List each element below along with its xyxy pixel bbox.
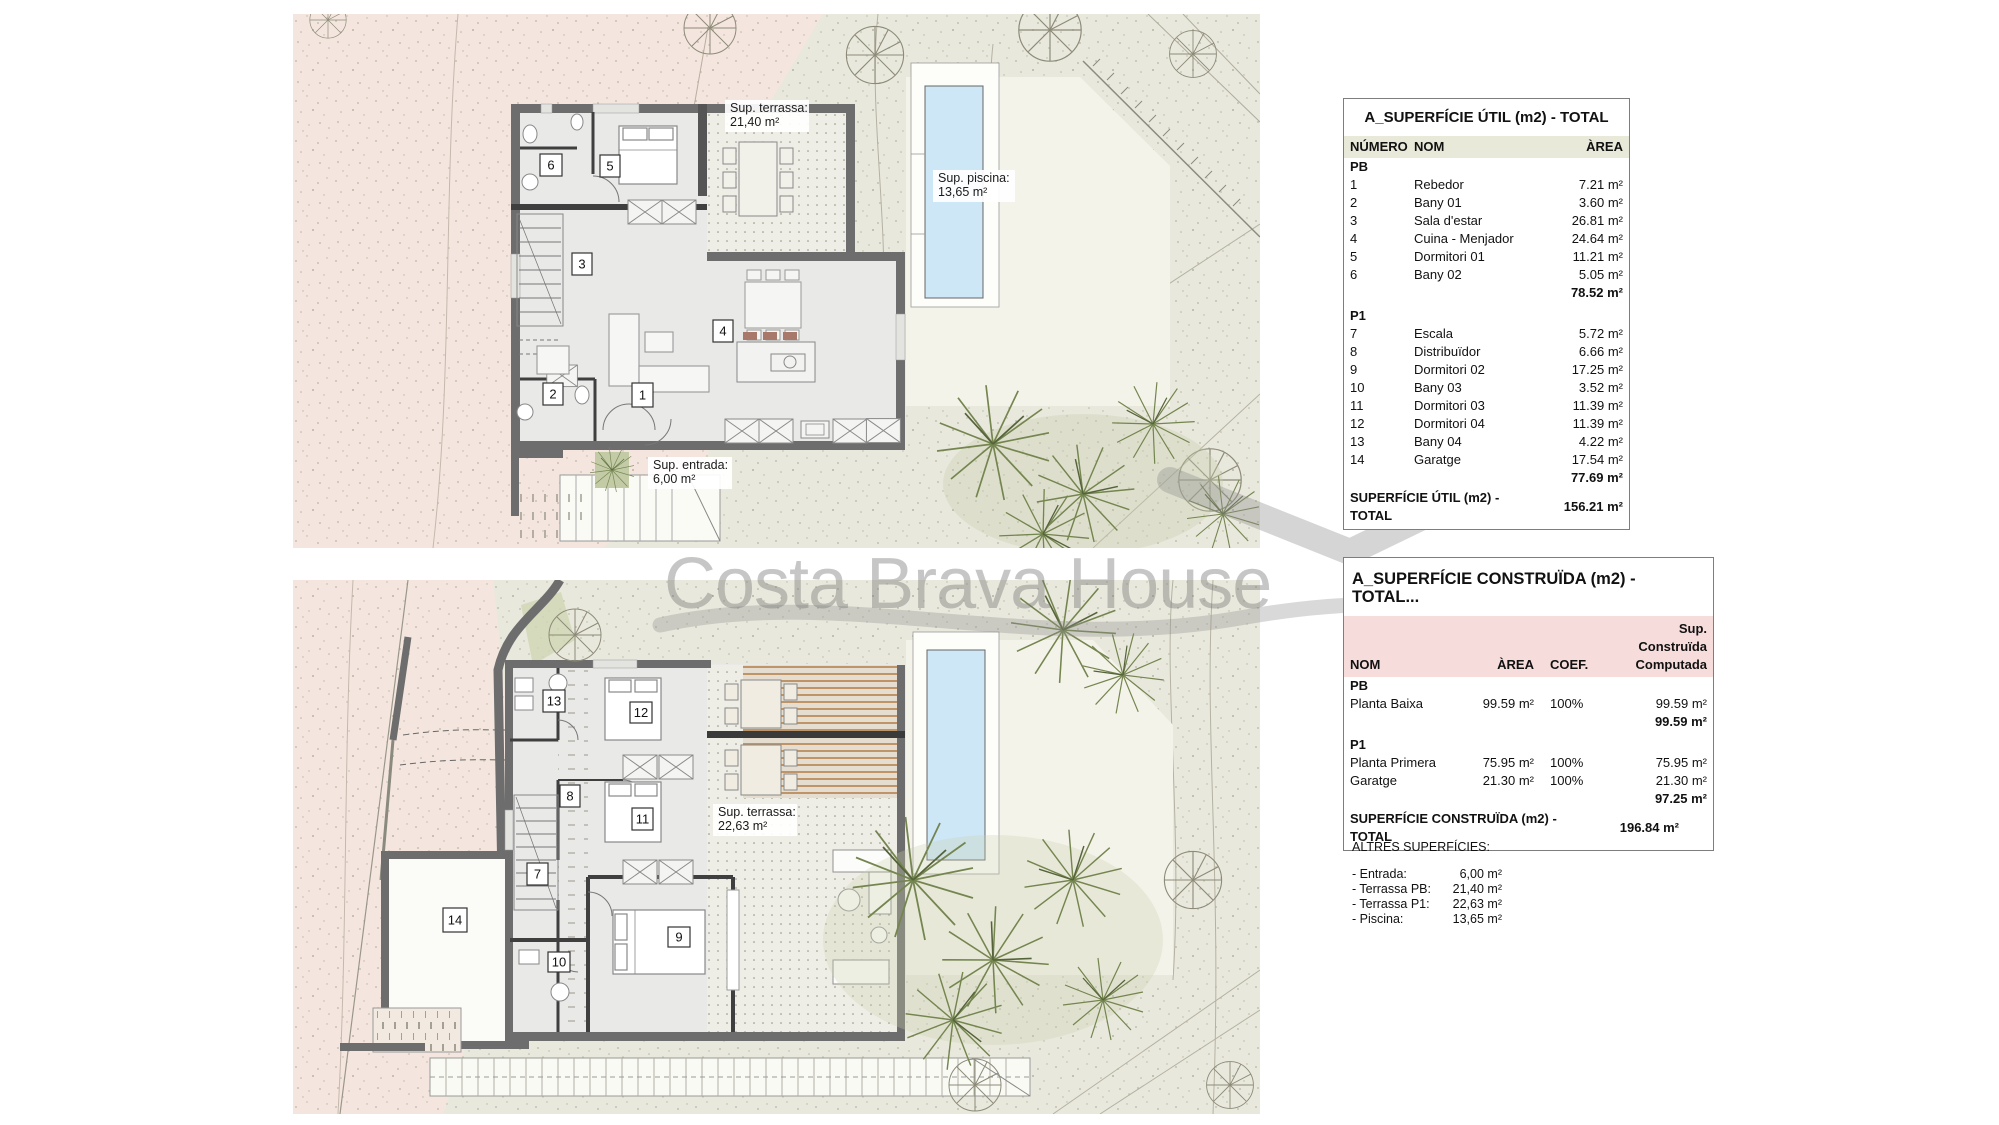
cell-area: 11.21 m² (1539, 248, 1623, 266)
table-superficie-construida: A_SUPERFÍCIE CONSTRUÏDA (m2) - TOTAL... … (1343, 557, 1714, 851)
cell-area: 5.05 m² (1539, 266, 1623, 284)
room-number-label: 13 (543, 690, 565, 712)
svg-text:Sup. entrada:: Sup. entrada: (653, 458, 728, 472)
svg-text:11: 11 (636, 812, 650, 827)
col-header-area: ÀREA (1460, 656, 1534, 674)
table-row: 3 Sala d'estar 26.81 m² (1344, 212, 1629, 230)
svg-text:6: 6 (547, 158, 554, 173)
altres-item-label: - Entrada: (1352, 867, 1440, 882)
cell-sup: 99.59 m² (1620, 695, 1707, 713)
cell-sup: 75.95 m² (1620, 754, 1707, 772)
watermark-text: Costa Brava House (664, 543, 1271, 625)
altres-item-label: - Terrassa P1: (1352, 897, 1440, 912)
cell-numero: 5 (1350, 248, 1414, 266)
cell-nom: Dormitori 03 (1414, 397, 1539, 415)
dining-table (745, 270, 801, 340)
subtotal-row-p1: 97.25 m² (1344, 790, 1713, 808)
col-header-sup-computada: Sup. Construïda Computada (1620, 620, 1707, 674)
room-number-label: 7 (527, 863, 548, 885)
room-number-label: 11 (632, 808, 653, 830)
cell-nom: Bany 01 (1414, 194, 1539, 212)
table-header-row: NOM ÀREA COEF. Sup. Construïda Computada (1344, 616, 1713, 677)
wardrobe (628, 200, 662, 224)
table-title: A_SUPERFÍCIE CONSTRUÏDA (m2) - TOTAL... (1344, 558, 1713, 616)
svg-text:14: 14 (448, 913, 462, 928)
table-row: Planta Baixa 99.59 m² 100% 99.59 m² (1344, 695, 1713, 713)
svg-text:Sup. piscina:: Sup. piscina: (938, 171, 1010, 185)
room-number-label: 2 (543, 383, 563, 405)
table-row: 13 Bany 04 4.22 m² (1344, 433, 1629, 451)
cell-nom: Garatge (1414, 451, 1539, 469)
section-label-pb: PB (1344, 158, 1629, 176)
cell-numero: 14 (1350, 451, 1414, 469)
table-row: Planta Primera 75.95 m² 100% 75.95 m² (1344, 754, 1713, 772)
cell-numero: 11 (1350, 397, 1414, 415)
page: { "watermark": { "text": "Costa Brava Ho… (0, 0, 1999, 1125)
room-number-label: 4 (713, 320, 733, 342)
cell-nom: Sala d'estar (1414, 212, 1539, 230)
col-header-area: ÀREA (1539, 138, 1623, 156)
cell-numero: 4 (1350, 230, 1414, 248)
table-row: 2 Bany 01 3.60 m² (1344, 194, 1629, 212)
cell-area: 26.81 m² (1539, 212, 1623, 230)
cell-nom: Dormitori 01 (1414, 248, 1539, 266)
svg-text:21,40 m²: 21,40 m² (730, 115, 779, 129)
svg-text:4: 4 (719, 324, 726, 339)
floor-plan-pb: 1 2 3 4 5 6 Sup. terrassa: 21,40 m² Sup.… (293, 14, 1260, 548)
svg-text:Sup. terrassa:: Sup. terrassa: (730, 101, 808, 115)
terrace-area-label: Sup. terrassa: 21,40 m² (725, 100, 809, 132)
cell-nom: Planta Baixa (1350, 695, 1460, 713)
cell-area: 3.52 m² (1539, 379, 1623, 397)
subtotal-row-p1: 77.69 m² (1344, 469, 1629, 487)
col-header-coef: COEF. (1534, 656, 1620, 674)
cell-nom: Distribuïdor (1414, 343, 1539, 361)
table-row: 14 Garatge 17.54 m² (1344, 451, 1629, 469)
cell-nom: Bany 04 (1414, 433, 1539, 451)
table-row: Garatge 21.30 m² 100% 21.30 m² (1344, 772, 1713, 790)
cell-nom: Dormitori 04 (1414, 415, 1539, 433)
cell-numero: 1 (1350, 176, 1414, 194)
svg-text:8: 8 (566, 789, 573, 804)
cell-nom: Cuina - Menjador (1414, 230, 1539, 248)
wardrobe (659, 755, 693, 779)
cell-area: 11.39 m² (1539, 397, 1623, 415)
room-number-label: 5 (600, 155, 620, 177)
altres-item: - Entrada: 6,00 m² (1352, 867, 1502, 882)
table-row: 5 Dormitori 01 11.21 m² (1344, 248, 1629, 266)
svg-text:13: 13 (547, 694, 561, 709)
subtotal-pb-value: 99.59 m² (1620, 713, 1707, 731)
altres-item-value: 13,65 m² (1440, 912, 1502, 927)
cell-nom: Dormitori 02 (1414, 361, 1539, 379)
cell-nom: Bany 03 (1414, 379, 1539, 397)
cell-numero: 9 (1350, 361, 1414, 379)
subtotal-row-pb: 99.59 m² (1344, 713, 1713, 731)
altres-item-value: 21,40 m² (1440, 882, 1502, 897)
col-header-nom: NOM (1350, 656, 1460, 674)
wardrobe (659, 860, 693, 884)
floor-plan-pb-svg: 1 2 3 4 5 6 Sup. terrassa: 21,40 m² Sup.… (293, 14, 1260, 548)
room-number-label: 3 (572, 253, 592, 275)
room-number-label: 14 (443, 908, 467, 932)
cell-coef: 100% (1534, 772, 1620, 790)
table-row: 7 Escala 5.72 m² (1344, 325, 1629, 343)
terrace-table (723, 142, 793, 216)
table-row: 1 Rebedor 7.21 m² (1344, 176, 1629, 194)
room-number-label: 8 (560, 785, 580, 807)
room-number-label: 9 (668, 927, 690, 947)
room-number-label: 6 (540, 154, 562, 176)
svg-text:13,65 m²: 13,65 m² (938, 185, 987, 199)
altres-item-value: 22,63 m² (1440, 897, 1502, 912)
wardrobe (662, 200, 696, 224)
cell-nom: Escala (1414, 325, 1539, 343)
cell-area: 5.72 m² (1539, 325, 1623, 343)
cell-area: 6.66 m² (1539, 343, 1623, 361)
cell-numero: 8 (1350, 343, 1414, 361)
cell-numero: 2 (1350, 194, 1414, 212)
rows-pb: Planta Baixa 99.59 m² 100% 99.59 m² (1344, 695, 1713, 713)
altres-superficies: ALTRES SUPERFÍCIES: - Entrada: 6,00 m² -… (1352, 840, 1502, 927)
cell-coef: 100% (1534, 695, 1620, 713)
rows-pb: 1 Rebedor 7.21 m² 2 Bany 01 3.60 m² 3 Sa… (1344, 176, 1629, 284)
cell-area: 17.54 m² (1539, 451, 1623, 469)
subtotal-p1-value: 97.25 m² (1620, 790, 1707, 808)
entrance-area-label: Sup. entrada: 6,00 m² (648, 457, 732, 489)
cell-numero: 13 (1350, 433, 1414, 451)
altres-item-label: - Terrassa PB: (1352, 882, 1440, 897)
subtotal-row-pb: 78.52 m² (1344, 284, 1629, 302)
cell-area: 4.22 m² (1539, 433, 1623, 451)
terrace-area-label: Sup. terrassa: 22,63 m² (713, 804, 797, 836)
room-number-label: 1 (632, 383, 653, 407)
room-number-label: 10 (548, 952, 570, 972)
svg-text:22,63 m²: 22,63 m² (718, 819, 767, 833)
svg-text:3: 3 (578, 257, 585, 272)
room-number-label: 12 (630, 702, 652, 723)
wardrobe (623, 755, 657, 779)
table-row: 6 Bany 02 5.05 m² (1344, 266, 1629, 284)
cell-area: 11.39 m² (1539, 415, 1623, 433)
table-row: 4 Cuina - Menjador 24.64 m² (1344, 230, 1629, 248)
section-label-p1: P1 (1344, 731, 1713, 754)
total-value: 156.21 m² (1539, 498, 1623, 516)
cell-area: 3.60 m² (1539, 194, 1623, 212)
table-row: 11 Dormitori 03 11.39 m² (1344, 397, 1629, 415)
table-row: 10 Bany 03 3.52 m² (1344, 379, 1629, 397)
cell-coef: 100% (1534, 754, 1620, 772)
section-label-p1: P1 (1344, 302, 1629, 325)
cell-area: 75.95 m² (1460, 754, 1534, 772)
bed (619, 126, 677, 184)
cell-numero: 10 (1350, 379, 1414, 397)
subtotal-pb-value: 78.52 m² (1539, 284, 1623, 302)
svg-text:12: 12 (634, 705, 648, 720)
cell-numero: 3 (1350, 212, 1414, 230)
svg-text:9: 9 (675, 930, 682, 945)
svg-text:1: 1 (639, 388, 646, 403)
altres-item-label: - Piscina: (1352, 912, 1440, 927)
section-label-pb: PB (1344, 677, 1713, 695)
cell-nom: Rebedor (1414, 176, 1539, 194)
cell-area: 7.21 m² (1539, 176, 1623, 194)
table-title: A_SUPERFÍCIE ÚTIL (m2) - TOTAL (1344, 99, 1629, 136)
col-header-nom: NOM (1414, 138, 1539, 156)
table-row: 12 Dormitori 04 11.39 m² (1344, 415, 1629, 433)
cell-numero: 6 (1350, 266, 1414, 284)
cell-numero: 12 (1350, 415, 1414, 433)
svg-text:6,00 m²: 6,00 m² (653, 472, 695, 486)
svg-text:7: 7 (534, 867, 541, 882)
pool-area-label: Sup. piscina: 13,65 m² (933, 170, 1015, 202)
svg-text:5: 5 (606, 159, 613, 174)
cell-nom: Garatge (1350, 772, 1460, 790)
altres-title: ALTRES SUPERFÍCIES: (1352, 840, 1502, 854)
col-header-numero: NÚMERO (1350, 138, 1414, 156)
wardrobe (623, 860, 657, 884)
cell-area: 99.59 m² (1460, 695, 1534, 713)
corridor-floor (558, 668, 588, 1032)
cell-nom: Bany 02 (1414, 266, 1539, 284)
svg-text:10: 10 (552, 955, 566, 970)
altres-item-value: 6,00 m² (1440, 867, 1502, 882)
table-row: 9 Dormitori 02 17.25 m² (1344, 361, 1629, 379)
cell-area: 21.30 m² (1460, 772, 1534, 790)
cell-area: 17.25 m² (1539, 361, 1623, 379)
floor-plan-p1: 7 8 9 10 11 12 13 14 Sup. terrassa: 22,6… (293, 580, 1260, 1114)
floor-plan-p1-svg: 7 8 9 10 11 12 13 14 Sup. terrassa: 22,6… (293, 580, 1260, 1114)
total-label: SUPERFÍCIE ÚTIL (m2) - TOTAL (1350, 489, 1539, 525)
total-row: SUPERFÍCIE ÚTIL (m2) - TOTAL 156.21 m² (1344, 487, 1629, 529)
cell-nom: Planta Primera (1350, 754, 1460, 772)
cell-area: 24.64 m² (1539, 230, 1623, 248)
total-value: 196.84 m² (1589, 819, 1679, 837)
altres-item: - Terrassa P1: 22,63 m² (1352, 897, 1502, 912)
subtotal-p1-value: 77.69 m² (1539, 469, 1623, 487)
cell-sup: 21.30 m² (1620, 772, 1707, 790)
cell-numero: 7 (1350, 325, 1414, 343)
table-header-row: NÚMERO NOM ÀREA (1344, 136, 1629, 158)
rows-p1: 7 Escala 5.72 m² 8 Distribuïdor 6.66 m² … (1344, 325, 1629, 469)
table-row: 8 Distribuïdor 6.66 m² (1344, 343, 1629, 361)
rows-p1: Planta Primera 75.95 m² 100% 75.95 m² Ga… (1344, 754, 1713, 790)
svg-text:2: 2 (549, 387, 556, 402)
pool (927, 650, 985, 860)
altres-item: - Terrassa PB: 21,40 m² (1352, 882, 1502, 897)
table-superficie-util: A_SUPERFÍCIE ÚTIL (m2) - TOTAL NÚMERO NO… (1343, 98, 1630, 530)
altres-item: - Piscina: 13,65 m² (1352, 912, 1502, 927)
svg-text:Sup. terrassa:: Sup. terrassa: (718, 805, 796, 819)
